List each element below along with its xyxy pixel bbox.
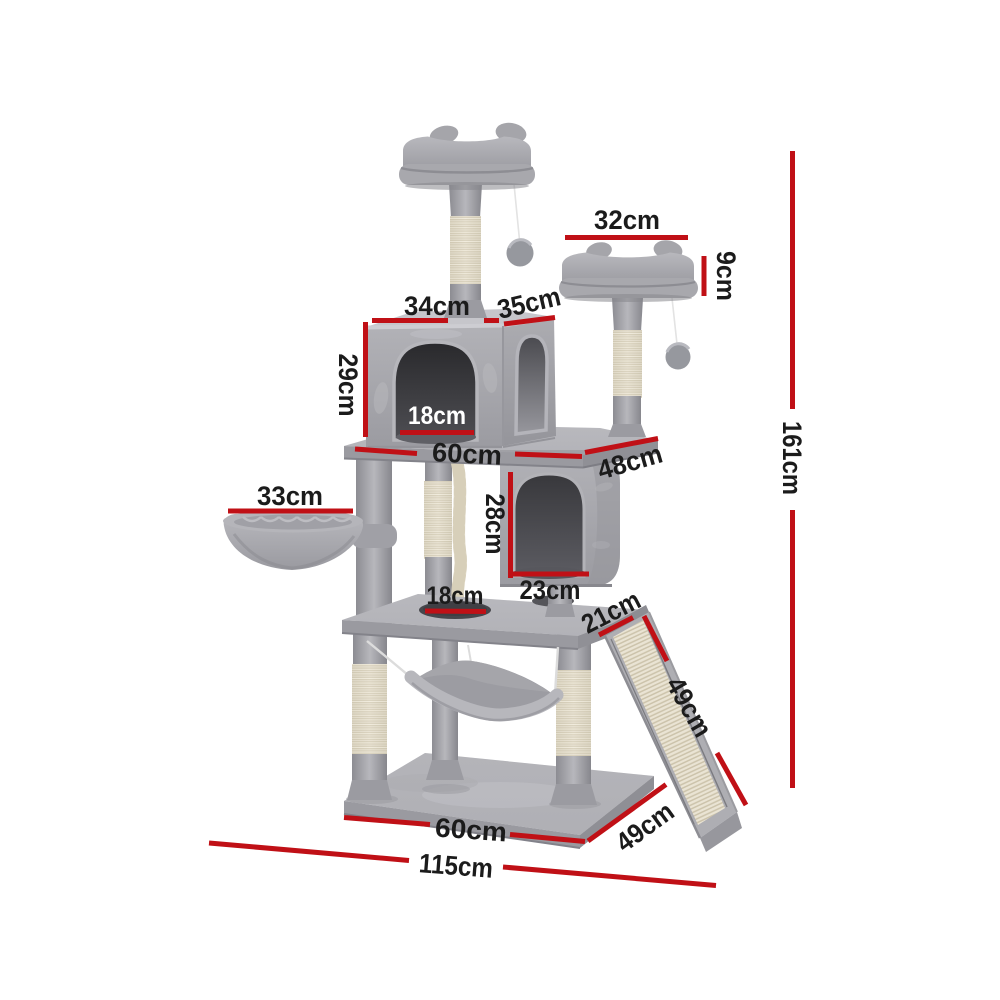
svg-text:23cm: 23cm bbox=[520, 575, 581, 605]
svg-text:28cm: 28cm bbox=[480, 494, 510, 555]
svg-text:9cm: 9cm bbox=[711, 251, 741, 301]
svg-text:32cm: 32cm bbox=[594, 205, 660, 235]
svg-text:115cm: 115cm bbox=[418, 848, 494, 884]
svg-text:60cm: 60cm bbox=[431, 437, 502, 471]
svg-text:161cm: 161cm bbox=[777, 421, 807, 495]
svg-text:29cm: 29cm bbox=[333, 354, 363, 417]
svg-text:18cm: 18cm bbox=[408, 402, 466, 430]
svg-text:34cm: 34cm bbox=[404, 291, 470, 321]
svg-text:18cm: 18cm bbox=[427, 582, 484, 610]
svg-text:60cm: 60cm bbox=[434, 813, 508, 848]
svg-text:33cm: 33cm bbox=[257, 481, 323, 511]
